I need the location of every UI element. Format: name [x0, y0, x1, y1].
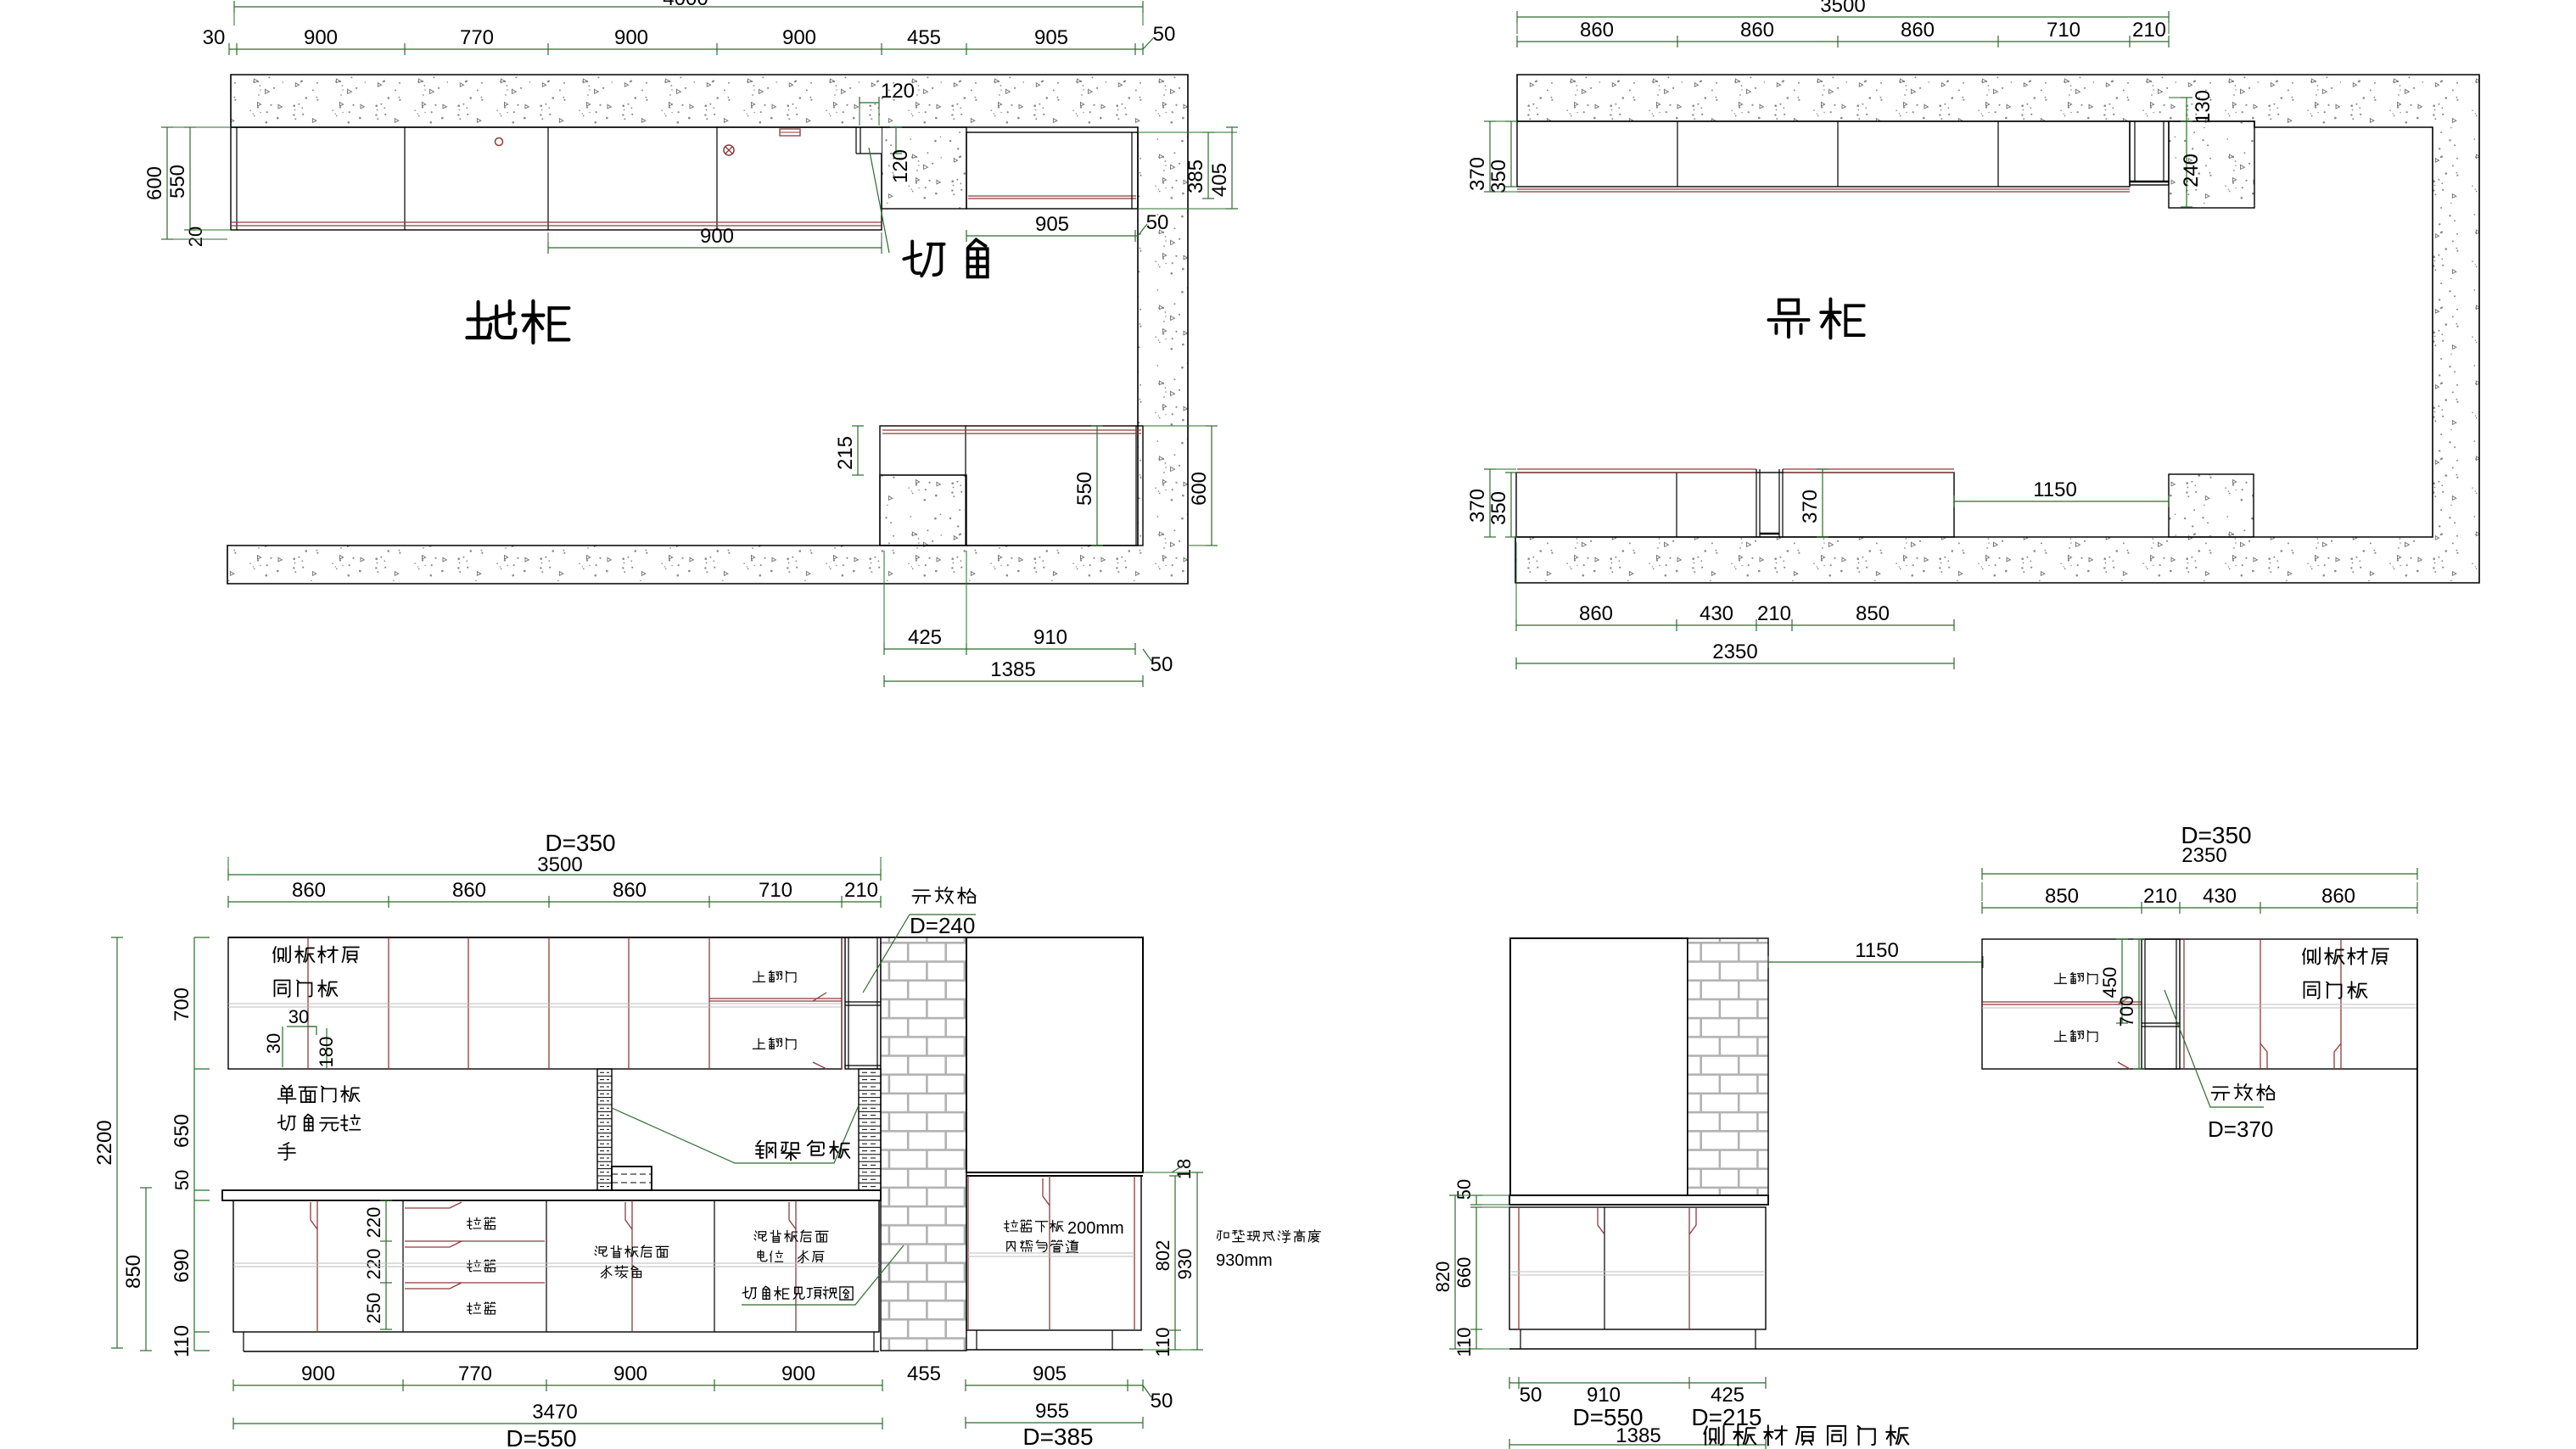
- svg-text:210: 210: [2132, 19, 2166, 42]
- svg-text:130: 130: [2192, 90, 2215, 124]
- svg-text:860: 860: [1740, 19, 1774, 42]
- svg-text:30: 30: [288, 1006, 309, 1027]
- svg-text:1150: 1150: [2033, 478, 2077, 501]
- svg-text:905: 905: [1033, 1362, 1067, 1385]
- svg-text:900: 900: [301, 1362, 335, 1385]
- svg-text:D=385: D=385: [1022, 1424, 1093, 1449]
- svg-text:240: 240: [2180, 154, 2203, 187]
- svg-text:4000: 4000: [663, 0, 708, 10]
- svg-text:3470: 3470: [532, 1401, 577, 1424]
- svg-text:860: 860: [452, 879, 486, 902]
- svg-text:D=550: D=550: [506, 1425, 576, 1449]
- svg-text:50: 50: [1453, 1179, 1475, 1200]
- svg-text:820: 820: [1432, 1262, 1453, 1293]
- svg-text:860: 860: [1579, 602, 1613, 625]
- svg-text:900: 900: [304, 26, 338, 49]
- svg-text:910: 910: [1587, 1384, 1621, 1407]
- svg-text:50: 50: [1151, 1390, 1173, 1413]
- svg-text:1385: 1385: [1616, 1424, 1660, 1447]
- svg-text:50: 50: [171, 1170, 193, 1190]
- svg-text:350: 350: [1487, 159, 1510, 193]
- svg-text:860: 860: [2321, 885, 2355, 908]
- svg-text:700: 700: [2116, 996, 2137, 1027]
- svg-text:455: 455: [907, 1362, 941, 1385]
- svg-text:350: 350: [1487, 491, 1510, 525]
- svg-text:425: 425: [1711, 1384, 1744, 1407]
- svg-text:110: 110: [171, 1325, 193, 1357]
- svg-text:900: 900: [613, 1362, 647, 1385]
- svg-text:905: 905: [1035, 213, 1069, 236]
- svg-text:860: 860: [613, 879, 647, 902]
- svg-text:210: 210: [2143, 885, 2177, 908]
- svg-text:430: 430: [1700, 602, 1733, 625]
- svg-text:30: 30: [203, 26, 226, 49]
- svg-text:850: 850: [2045, 885, 2079, 908]
- svg-text:770: 770: [458, 1362, 492, 1385]
- svg-text:770: 770: [460, 26, 494, 49]
- svg-text:700: 700: [171, 987, 193, 1021]
- svg-text:900: 900: [782, 26, 816, 49]
- svg-text:690: 690: [171, 1249, 193, 1283]
- svg-text:370: 370: [1466, 157, 1489, 191]
- svg-text:30: 30: [263, 1033, 284, 1054]
- svg-text:405: 405: [1208, 163, 1231, 197]
- svg-text:450: 450: [2099, 967, 2120, 999]
- svg-text:215: 215: [834, 436, 857, 470]
- svg-text:370: 370: [1799, 490, 1822, 523]
- svg-text:385: 385: [1184, 159, 1207, 193]
- svg-text:1150: 1150: [1855, 939, 1899, 962]
- svg-text:50: 50: [1520, 1384, 1543, 1407]
- svg-text:860: 860: [1901, 19, 1935, 42]
- svg-text:425: 425: [908, 626, 942, 649]
- svg-text:50: 50: [1153, 23, 1176, 46]
- svg-text:905: 905: [1034, 26, 1068, 49]
- svg-text:850: 850: [122, 1255, 145, 1289]
- svg-text:710: 710: [2047, 19, 2080, 42]
- svg-text:900: 900: [614, 26, 648, 49]
- svg-text:210: 210: [844, 879, 878, 902]
- svg-text:860: 860: [292, 879, 326, 902]
- svg-text:930mm: 930mm: [1216, 1251, 1273, 1270]
- svg-text:3500: 3500: [537, 853, 582, 876]
- svg-text:550: 550: [166, 165, 189, 199]
- svg-text:D=215: D=215: [1691, 1404, 1761, 1430]
- svg-text:3500: 3500: [1820, 0, 1865, 17]
- svg-text:2350: 2350: [1712, 641, 1757, 663]
- svg-text:850: 850: [1856, 602, 1890, 625]
- svg-text:455: 455: [907, 26, 941, 49]
- svg-text:120: 120: [889, 149, 912, 183]
- svg-text:600: 600: [1188, 472, 1211, 506]
- svg-text:110: 110: [1453, 1327, 1475, 1357]
- svg-text:802: 802: [1152, 1240, 1173, 1272]
- svg-text:D=350: D=350: [545, 830, 615, 856]
- svg-text:900: 900: [781, 1362, 815, 1385]
- svg-text:D=240: D=240: [910, 913, 975, 938]
- svg-text:120: 120: [881, 80, 915, 103]
- svg-text:110: 110: [1152, 1327, 1173, 1357]
- svg-text:180: 180: [316, 1037, 337, 1068]
- svg-text:220: 220: [363, 1207, 384, 1239]
- svg-text:D=370: D=370: [2208, 1116, 2273, 1142]
- svg-text:710: 710: [759, 879, 792, 902]
- svg-text:550: 550: [1073, 472, 1096, 506]
- svg-text:220: 220: [363, 1249, 384, 1280]
- svg-text:370: 370: [1466, 489, 1489, 523]
- svg-text:20: 20: [185, 227, 206, 247]
- svg-text:250: 250: [363, 1293, 384, 1324]
- svg-text:50: 50: [1151, 653, 1173, 676]
- svg-text:200mm: 200mm: [1067, 1219, 1124, 1238]
- svg-text:50: 50: [1146, 211, 1169, 234]
- svg-text:955: 955: [1035, 1400, 1069, 1423]
- svg-text:600: 600: [143, 166, 166, 200]
- svg-text:930: 930: [1174, 1249, 1196, 1280]
- svg-text:660: 660: [1453, 1257, 1475, 1289]
- svg-text:1385: 1385: [990, 658, 1035, 681]
- svg-text:900: 900: [700, 225, 734, 248]
- svg-text:2200: 2200: [93, 1120, 116, 1165]
- svg-text:430: 430: [2203, 885, 2237, 908]
- svg-text:860: 860: [1580, 19, 1614, 42]
- svg-text:2350: 2350: [2181, 844, 2226, 867]
- svg-text:910: 910: [1033, 626, 1067, 649]
- svg-text:210: 210: [1757, 602, 1791, 625]
- svg-text:650: 650: [171, 1114, 193, 1148]
